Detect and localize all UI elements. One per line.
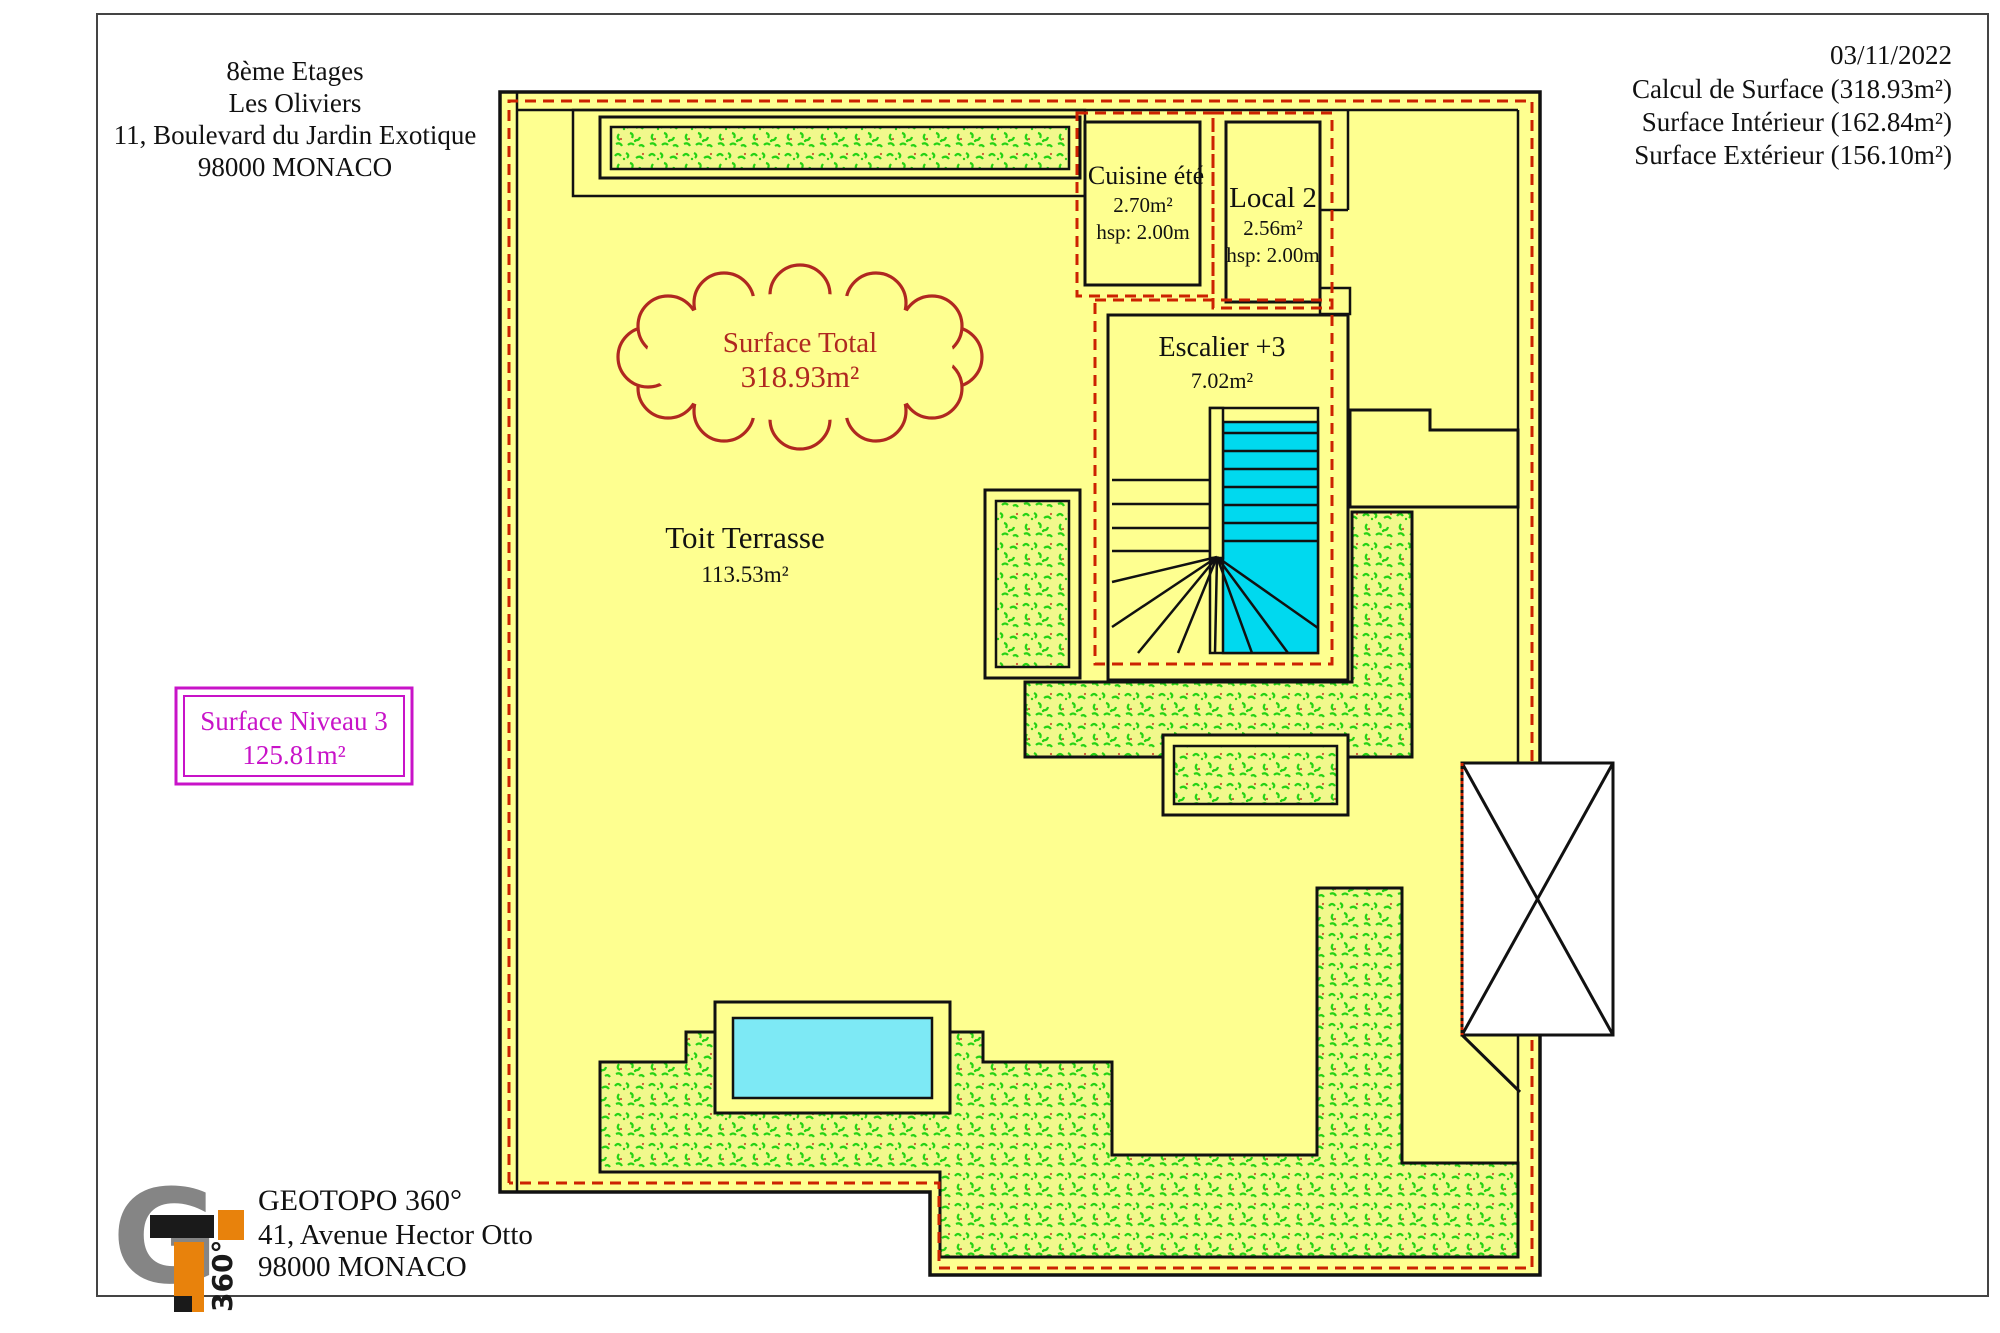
floor-plan-page: Toit Terrasse 113.53m² Cuisine été 2.70m… bbox=[0, 0, 2000, 1333]
footer-company: GEOTOPO 360° bbox=[258, 1184, 462, 1217]
left-planter bbox=[996, 501, 1069, 667]
toit-terrasse-area: 113.53m² bbox=[701, 562, 788, 587]
niveau3-title: Surface Niveau 3 bbox=[200, 706, 387, 736]
header-surface-interieur: Surface Intérieur (162.84m²) bbox=[1642, 107, 1952, 137]
footer-city: 98000 MONACO bbox=[258, 1251, 467, 1283]
surface-niveau3-box: Surface Niveau 3 125.81m² bbox=[176, 688, 412, 784]
escalier-area: 7.02m² bbox=[1191, 368, 1254, 393]
header-address-line4: 98000 MONACO bbox=[198, 152, 392, 182]
cuisine-hsp: hsp: 2.00m bbox=[1096, 220, 1189, 244]
header-address-line2: Les Oliviers bbox=[229, 88, 362, 118]
surface-total-title: Surface Total bbox=[723, 327, 877, 359]
local2-area: 2.56m² bbox=[1243, 216, 1302, 240]
small-planter bbox=[1174, 746, 1337, 804]
header-address-line3: 11, Boulevard du Jardin Exotique bbox=[114, 120, 477, 150]
toit-terrasse-title: Toit Terrasse bbox=[665, 520, 825, 555]
cuisine-area: 2.70m² bbox=[1113, 193, 1172, 217]
logo-360-vertical: 360° bbox=[206, 1240, 239, 1312]
cuisine-title: Cuisine été bbox=[1088, 161, 1204, 190]
roof-terrace-plan: Toit Terrasse 113.53m² Cuisine été 2.70m… bbox=[500, 92, 1613, 1275]
logo-orange-square bbox=[218, 1210, 244, 1240]
escalier-title: Escalier +3 bbox=[1159, 332, 1286, 363]
local2-title: Local 2 bbox=[1229, 182, 1317, 214]
header-calcul-surface: Calcul de Surface (318.93m²) bbox=[1632, 74, 1952, 104]
pool bbox=[733, 1018, 932, 1098]
niveau3-value: 125.81m² bbox=[242, 740, 345, 770]
wall-protrusion bbox=[1320, 288, 1350, 314]
header-date: 03/11/2022 bbox=[1830, 40, 1952, 70]
header-surfaces: 03/11/2022 Calcul de Surface (318.93m²) … bbox=[1632, 40, 1952, 170]
logo-black-foot bbox=[174, 1296, 192, 1312]
company-logo: G 360° bbox=[112, 1161, 244, 1313]
footer-address: 41, Avenue Hector Otto bbox=[258, 1219, 533, 1251]
logo-black-bar bbox=[150, 1215, 214, 1238]
top-planter bbox=[611, 127, 1069, 169]
header-address: 8ème Etages Les Oliviers 11, Boulevard d… bbox=[114, 56, 477, 182]
local2-hsp: hsp: 2.00m bbox=[1226, 243, 1319, 267]
stair-spine bbox=[1210, 408, 1223, 558]
floor-plan-svg: Toit Terrasse 113.53m² Cuisine été 2.70m… bbox=[0, 0, 2000, 1333]
header-address-line1: 8ème Etages bbox=[226, 56, 363, 86]
surface-total-value: 318.93m² bbox=[741, 359, 860, 394]
header-surface-exterieur: Surface Extérieur (156.10m²) bbox=[1634, 140, 1952, 170]
footer-company-block: GEOTOPO 360° 41, Avenue Hector Otto 9800… bbox=[258, 1184, 533, 1283]
